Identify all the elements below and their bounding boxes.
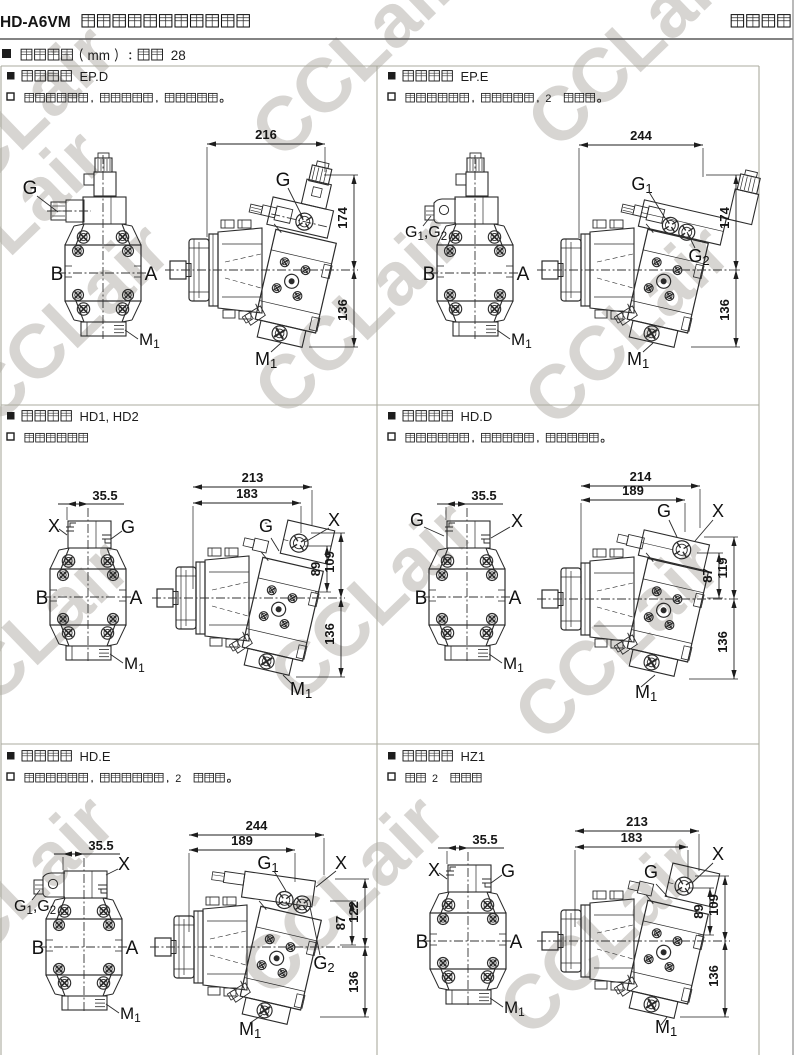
svg-text:X: X — [511, 511, 523, 531]
svg-text:EP.E: EP.E — [461, 69, 489, 84]
svg-text:X: X — [48, 516, 60, 536]
svg-text:HZ1: HZ1 — [461, 749, 486, 764]
svg-text:M1: M1 — [655, 1017, 677, 1039]
svg-text:CCLair: CCLair — [235, 0, 473, 174]
svg-text:136: 136 — [346, 971, 361, 993]
svg-text:M1: M1 — [239, 1019, 261, 1041]
svg-text:G: G — [276, 170, 291, 191]
svg-text:87: 87 — [700, 568, 715, 582]
svg-text:A: A — [126, 938, 139, 959]
svg-text:2: 2 — [175, 773, 181, 785]
svg-text:G1: G1 — [257, 853, 278, 875]
svg-text:244: 244 — [630, 128, 652, 143]
svg-text:136: 136 — [322, 623, 337, 645]
svg-text:HD-A6VM: HD-A6VM — [0, 14, 71, 31]
svg-text:X: X — [712, 501, 724, 521]
svg-text:G: G — [410, 510, 424, 530]
svg-text:X: X — [328, 510, 340, 530]
svg-text:28: 28 — [171, 48, 186, 63]
svg-text:A: A — [509, 588, 522, 609]
svg-text:A: A — [510, 932, 523, 953]
svg-text:HD.D: HD.D — [461, 409, 493, 424]
svg-text:A: A — [130, 588, 143, 609]
svg-text:183: 183 — [621, 830, 643, 845]
svg-text:35.5: 35.5 — [88, 838, 113, 853]
svg-text:HD1, HD2: HD1, HD2 — [80, 409, 139, 424]
svg-text:G: G — [501, 861, 515, 881]
svg-text:X: X — [712, 844, 724, 864]
svg-text:35.5: 35.5 — [92, 488, 117, 503]
svg-text:G: G — [644, 862, 658, 882]
svg-text:M1: M1 — [139, 330, 160, 351]
svg-text:109: 109 — [706, 894, 721, 916]
svg-text:M1: M1 — [120, 1004, 141, 1025]
svg-text:213: 213 — [626, 814, 648, 829]
svg-text:B: B — [415, 588, 428, 609]
svg-text:213: 213 — [242, 470, 264, 485]
svg-text:X: X — [428, 860, 440, 880]
svg-text:M1: M1 — [511, 330, 532, 351]
svg-text:B: B — [416, 932, 429, 953]
svg-text:216: 216 — [255, 127, 277, 142]
svg-text:136: 136 — [715, 631, 730, 653]
svg-text:89: 89 — [691, 904, 706, 918]
svg-text:-: - — [264, 518, 267, 529]
svg-text:136: 136 — [706, 965, 721, 987]
svg-text:G: G — [121, 517, 135, 537]
svg-text:B: B — [423, 264, 436, 285]
svg-text:2: 2 — [432, 773, 438, 785]
svg-text:EP.D: EP.D — [80, 69, 109, 84]
svg-text:HD.E: HD.E — [80, 749, 111, 764]
svg-text:136: 136 — [335, 299, 350, 321]
svg-text:CCLair: CCLair — [0, 523, 146, 757]
svg-text:2: 2 — [545, 93, 551, 105]
svg-text:174: 174 — [335, 206, 350, 228]
svg-text:CCLair: CCLair — [223, 778, 461, 1012]
svg-text:183: 183 — [236, 486, 258, 501]
svg-text:109: 109 — [322, 551, 337, 573]
svg-text:136: 136 — [717, 299, 732, 321]
svg-text:B: B — [36, 588, 49, 609]
svg-text:189: 189 — [231, 833, 253, 848]
svg-text:B: B — [32, 938, 45, 959]
svg-text:M1: M1 — [503, 654, 524, 675]
svg-text:214: 214 — [630, 469, 652, 484]
svg-text:35.5: 35.5 — [471, 488, 496, 503]
svg-text:189: 189 — [622, 483, 644, 498]
svg-text:122: 122 — [346, 901, 361, 923]
svg-text:G: G — [657, 501, 671, 521]
svg-text:M1: M1 — [124, 654, 145, 675]
svg-text:A: A — [517, 264, 530, 285]
svg-text:mm: mm — [88, 48, 111, 63]
svg-text:X: X — [118, 854, 130, 874]
svg-text:35.5: 35.5 — [472, 832, 497, 847]
svg-text:87: 87 — [333, 916, 348, 930]
svg-text:A: A — [145, 264, 158, 285]
svg-text:174: 174 — [717, 206, 732, 228]
svg-text:CCLair: CCLair — [253, 484, 491, 718]
svg-text:89: 89 — [308, 562, 323, 576]
svg-text:M1: M1 — [635, 682, 657, 704]
svg-text:B: B — [51, 264, 64, 285]
svg-text:X: X — [335, 853, 347, 873]
svg-text:G: G — [23, 178, 38, 199]
svg-text:244: 244 — [246, 818, 268, 833]
